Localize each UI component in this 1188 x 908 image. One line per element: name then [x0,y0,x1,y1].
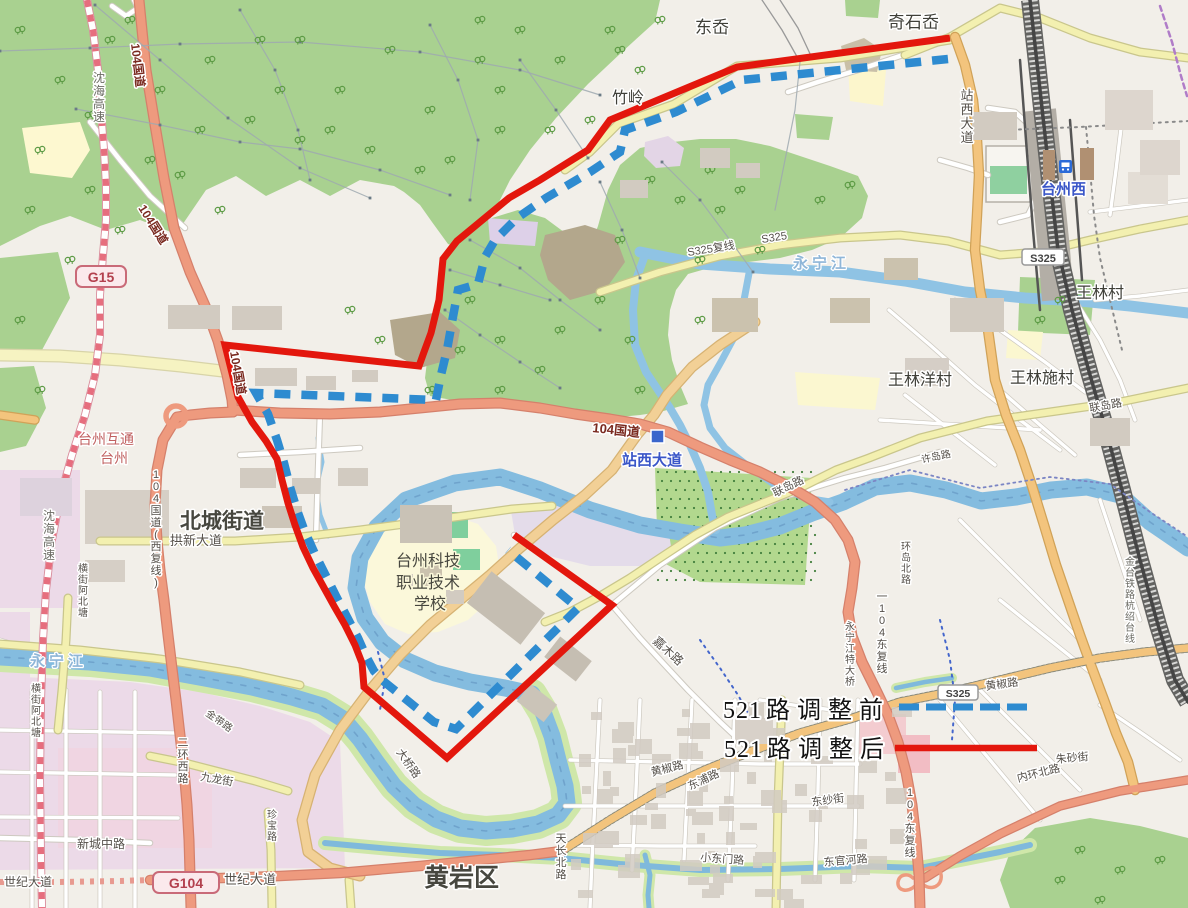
svg-text:北城街道: 北城街道 [180,509,264,533]
svg-text:环岛北路: 环岛北路 [901,542,911,586]
svg-text:世纪大道: 世纪大道 [4,875,52,889]
svg-text:横街阿北塘: 横街阿北塘 [78,562,88,619]
svg-text:G15: G15 [88,269,115,285]
svg-text:世纪大道: 世纪大道 [224,872,276,887]
svg-text:台州科技: 台州科技 [396,552,460,570]
svg-text:S325: S325 [1030,253,1056,265]
svg-text:天长北路: 天长北路 [556,833,567,881]
svg-text:王林洋村: 王林洋村 [888,371,952,389]
svg-text:台州: 台州 [100,450,128,466]
svg-text:521路调整前: 521路调整前 [723,697,890,724]
svg-text:站西大道: 站西大道 [960,88,973,145]
svg-text:521路调整后: 521路调整后 [724,736,891,763]
svg-text:学校: 学校 [414,595,446,613]
svg-text:S325: S325 [946,688,971,700]
svg-text:永宁江特大桥: 永宁江特大桥 [845,620,855,688]
svg-text:竹岭: 竹岭 [612,89,644,107]
svg-text:王林村: 王林村 [1076,284,1124,302]
svg-text:站西大道: 站西大道 [622,451,682,469]
svg-text:台州西: 台州西 [1041,180,1086,198]
svg-text:永宁江: 永宁江 [29,652,87,670]
svg-text:珍宝路: 珍宝路 [267,809,277,843]
svg-text:拱新大道: 拱新大道 [170,533,222,548]
svg-text:二环西路: 二环西路 [178,737,189,785]
svg-text:奇石岙: 奇石岙 [888,13,939,32]
svg-text:永宁江: 永宁江 [792,254,850,272]
svg-text:沈海高速: 沈海高速 [43,508,55,562]
svg-text:黄岩区: 黄岩区 [424,864,499,892]
svg-text:王林施村: 王林施村 [1010,369,1074,387]
svg-text:新城中路: 新城中路 [77,836,125,851]
svg-text:金台铁路杭绍台线: 金台铁路杭绍台线 [1125,555,1135,645]
svg-text:横街阿北塘: 横街阿北塘 [31,682,41,739]
svg-text:沈海高速: 沈海高速 [93,70,105,124]
svg-text:台州互通: 台州互通 [78,431,134,447]
svg-text:职业技术: 职业技术 [396,574,460,592]
svg-text:东岙: 东岙 [695,18,729,37]
svg-text:G104: G104 [169,875,203,891]
